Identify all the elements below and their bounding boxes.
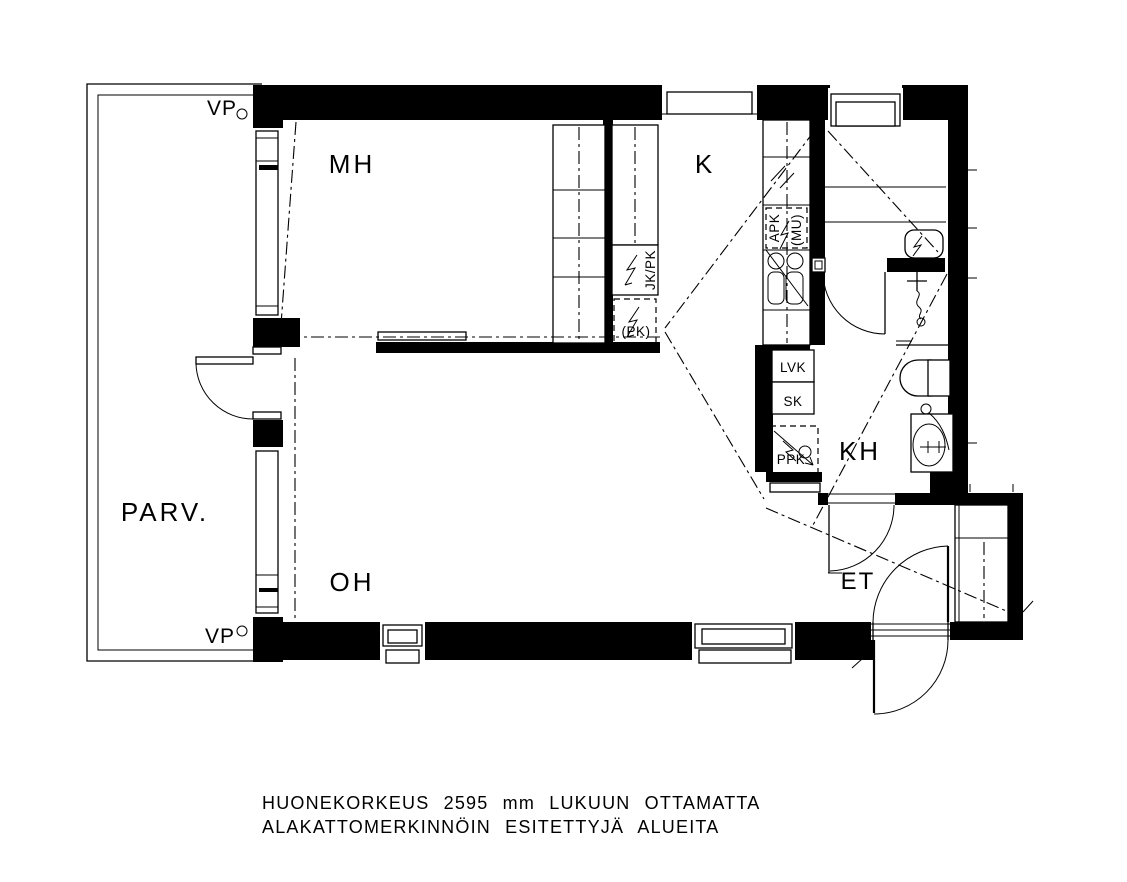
floor-plan-page: VP VP MH K OH KH ET PARV. JK/PK (PK) APK…	[0, 0, 1127, 882]
hall-closet	[955, 505, 1008, 622]
note-line-1: HUONEKORKEUS 2595 mm LUKUUN OTTAMATTA	[262, 793, 760, 813]
label-freezer-reservation: (PK)	[622, 324, 651, 339]
sauna-door	[823, 272, 885, 334]
bedroom-sliding-door	[378, 332, 466, 340]
oh-window	[252, 447, 282, 617]
washbasin	[911, 404, 953, 472]
vp-top-label: VP	[207, 97, 237, 120]
room-label-bathroom: KH	[839, 436, 881, 466]
bedroom-wardrobe	[553, 125, 605, 343]
room-label-bedroom: MH	[329, 149, 375, 179]
balcony-outline	[87, 84, 262, 661]
bottom-window-right	[692, 620, 795, 663]
bottom-window-left	[380, 620, 425, 663]
toilet	[900, 360, 950, 396]
room-label-entry-hall: ET	[841, 568, 876, 595]
label-fridge-freezer: JK/PK	[643, 250, 658, 290]
label-dishwasher: APK	[767, 214, 782, 243]
vp-top-circle-icon	[237, 109, 247, 119]
vp-marker-top: VP	[207, 97, 247, 120]
vp-bottom-label: VP	[205, 625, 235, 648]
label-microwave-reservation: (MU)	[789, 214, 804, 246]
label-heater-cabinet: LVK	[780, 360, 806, 375]
label-cleaning-cabinet: SK	[783, 394, 802, 409]
sauna-window	[828, 88, 903, 128]
balcony-door	[196, 347, 283, 420]
sauna-benches	[825, 187, 946, 258]
hall-shelf	[770, 483, 820, 492]
kitchen-window	[662, 86, 757, 120]
vp-marker-bottom: VP	[205, 625, 247, 648]
room-label-living-room: OH	[330, 567, 375, 597]
bathroom-door	[828, 492, 895, 573]
shower	[896, 271, 950, 345]
note-line-2: ALAKATTOMERKINNÖIN ESITETTYJÄ ALUEITA	[262, 817, 719, 837]
room-label-balcony: PARV.	[121, 497, 209, 527]
mh-window	[252, 128, 282, 318]
floor-plan-drawing: VP VP MH K OH KH ET PARV. JK/PK (PK) APK…	[0, 0, 1127, 882]
room-label-kitchen: K	[695, 149, 715, 179]
kitchen-cabinets-left	[612, 125, 658, 343]
label-washing-machine: PPK	[777, 452, 806, 467]
vp-bottom-circle-icon	[237, 626, 247, 636]
